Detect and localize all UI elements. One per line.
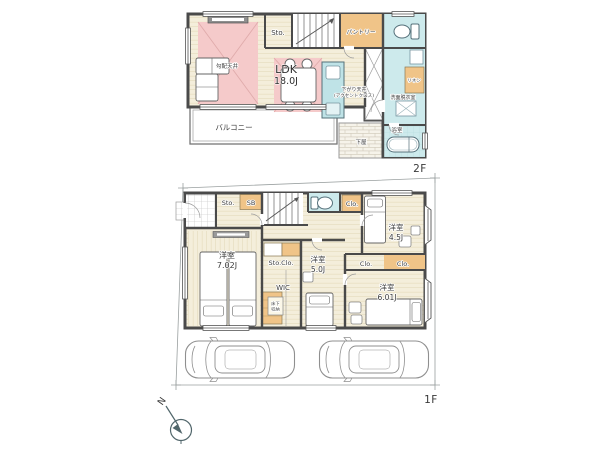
label-room70-size: 7.02J [217,261,237,270]
label-linen: リネン [407,78,421,84]
floorplan-svg: 勾配天井 LDK 18.0J Sto. パントリー 下がり天井 (アクセントクロ… [0,0,600,450]
label-room50: 洋室 [311,254,326,264]
label-ldk-size: 18.0J [274,76,298,87]
label-lowered-ceiling-note: (アクセントクロス) [334,93,374,99]
label-closet-b: Clo. [397,260,409,268]
label-closet-top: Clo. [346,200,358,208]
label-room60-size: 6.01J [378,293,397,302]
label-washroom: 洗面脱衣室 [390,94,415,101]
floor2-plan: 勾配天井 LDK 18.0J Sto. パントリー 下がり天井 (アクセントクロ… [186,12,428,175]
washbasin-icon [396,101,416,116]
label-sloped-ceiling: 勾配天井 [216,62,239,70]
toilet-icon-1f [311,197,333,209]
label-bathroom: 浴室 [391,126,403,134]
floor1-label: 1F [424,394,438,406]
label-room45-size: 4.5J [389,233,403,242]
floor2-label: 2F [413,163,427,175]
car-icon [186,338,295,382]
label-room70: 洋室 [219,250,235,260]
label-room50-size: 5.0J [311,265,325,274]
label-wic: WIC [276,284,290,292]
label-lowered-ceiling: 下がり天井 [341,86,366,93]
label-balcony: バルコニー [215,123,252,132]
compass-icon: N [156,395,192,444]
car-icon [320,338,429,382]
label-lower-roof: 下屋 [355,139,367,146]
bathtub-icon [387,137,419,152]
label-room45: 洋室 [389,222,404,232]
label-underfloor-2: 収納 [271,306,279,313]
label-storage-closet: Sto.Clo. [269,259,294,267]
label-room60: 洋室 [380,282,395,292]
sink-icon [326,66,340,79]
label-shoe-box: SB [247,199,256,207]
floorplan-image: 勾配天井 LDK 18.0J Sto. パントリー 下がり天井 (アクセントクロ… [0,0,600,450]
label-north: N [156,395,169,408]
stove-icon [326,103,340,115]
tv-board-icon [208,16,248,23]
label-storage-1f: Sto. [222,199,235,207]
bed-icon-room60 [366,299,422,325]
storage-closet-boxes [264,243,300,256]
balcony [190,107,337,144]
label-closet-a: Clo. [360,260,372,268]
bed-icon-room50 [306,293,333,326]
tv-board-icon-1f [213,232,249,238]
toilet-icon [394,24,419,39]
label-ldk: LDK [275,63,298,76]
entrance-hall [186,195,216,228]
label-storage-2f: Sto. [271,29,285,37]
washing-machine-icon [410,50,423,64]
label-pantry: パントリー [346,29,375,36]
cupboard-icon [365,48,383,120]
bed-icon-room45 [365,196,386,243]
